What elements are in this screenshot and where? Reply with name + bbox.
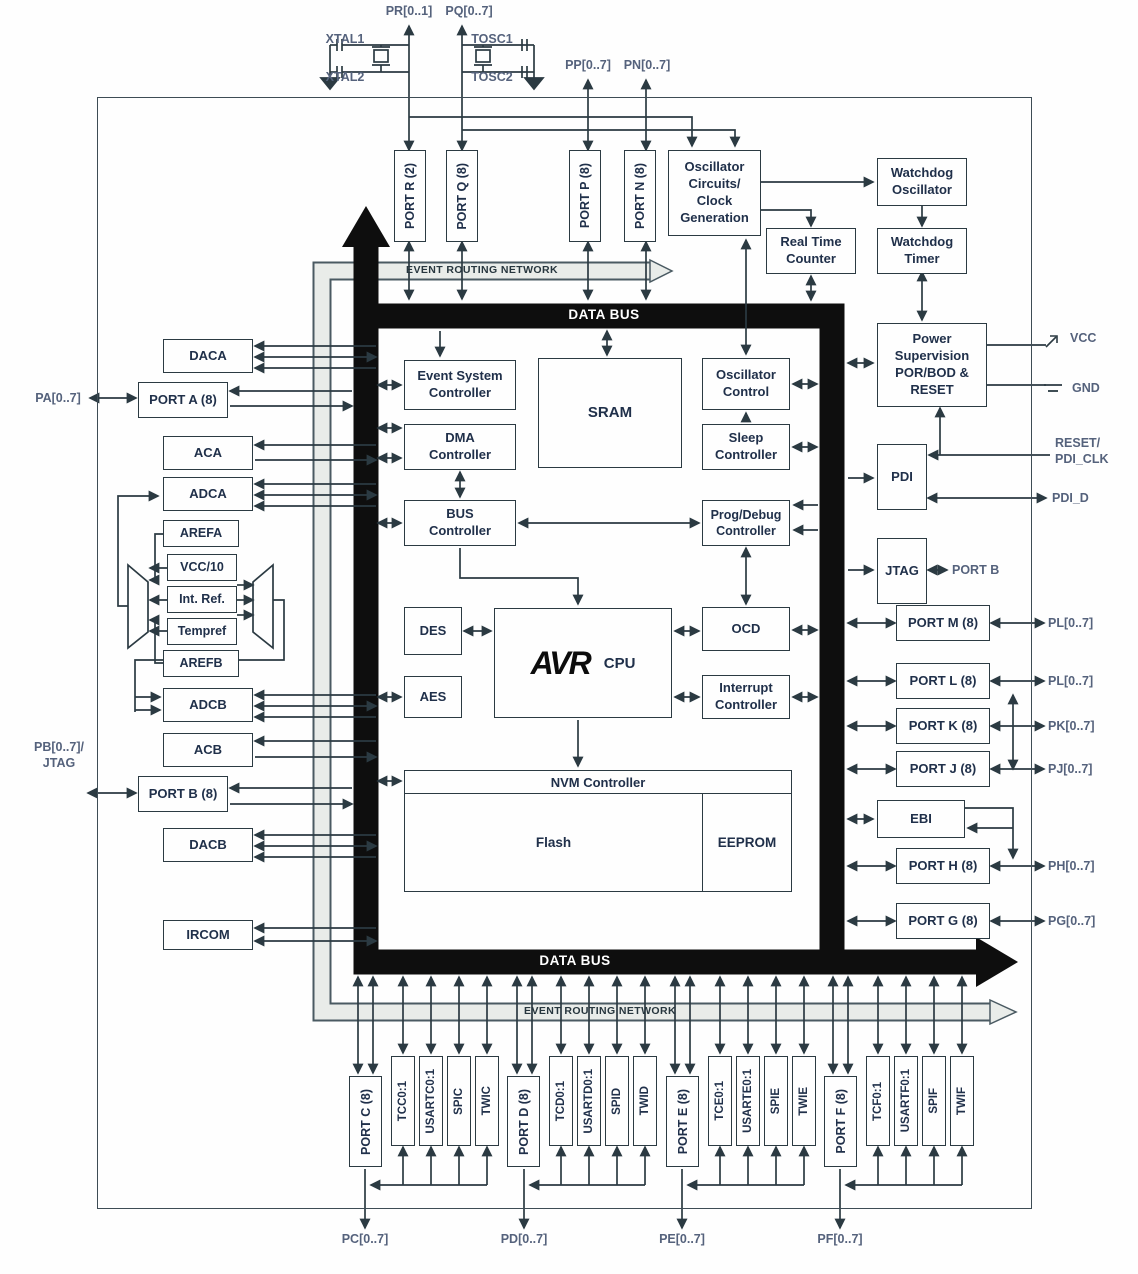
block-spif-label: SPIF — [928, 1088, 940, 1114]
block-power-supervision: Power Supervision POR/BOD & RESET — [877, 323, 987, 407]
block-tcd-label: TCD0:1 — [555, 1081, 567, 1121]
pin-label-pa: PA[0..7] — [26, 391, 90, 407]
mcu-block-diagram: DATA BUS DATA BUS EVENT ROUTING NETWORK … — [0, 0, 1138, 1274]
block-port-m: PORT M (8) — [896, 605, 990, 641]
block-watchdog-timer: Watchdog Timer — [877, 228, 967, 274]
block-watchdog-oscillator: Watchdog Oscillator — [877, 158, 967, 206]
block-tcc: TCC0:1 — [391, 1056, 415, 1146]
block-twie-label: TWIE — [798, 1087, 810, 1116]
block-port-b: PORT B (8) — [138, 776, 228, 812]
pin-label-pb-jtag: PB[0..7]/ JTAG — [24, 740, 94, 771]
nvm-controller-label: NVM Controller — [405, 771, 791, 794]
block-usartf: USARTF0:1 — [894, 1056, 918, 1146]
block-port-l: PORT L (8) — [896, 663, 990, 699]
pin-label-gnd: GND — [1072, 381, 1122, 397]
pin-label-vcc: VCC — [1070, 331, 1120, 347]
block-port-d: PORT D (8) — [507, 1076, 540, 1167]
block-twif-label: TWIF — [956, 1087, 968, 1115]
pin-label-pg: PG[0..7] — [1048, 914, 1110, 930]
block-tcf: TCF0:1 — [866, 1056, 890, 1146]
block-oscillator-circuits: Oscillator Circuits/ Clock Generation — [668, 150, 761, 236]
vcc-symbol — [1046, 336, 1057, 347]
block-cpu: AVR CPU — [494, 608, 672, 718]
block-acb: ACB — [163, 733, 253, 767]
block-port-j: PORT J (8) — [896, 751, 990, 787]
block-daca: DACA — [163, 339, 253, 373]
block-des: DES — [404, 607, 462, 655]
block-flash: Flash — [405, 794, 702, 891]
block-ircom: IRCOM — [163, 920, 253, 950]
block-tcc-label: TCC0:1 — [397, 1081, 409, 1121]
avr-logo: AVR — [531, 645, 590, 682]
block-twie: TWIE — [792, 1056, 816, 1146]
block-port-p: PORT P (8) — [569, 150, 601, 242]
block-port-q-label: PORT Q (8) — [455, 163, 469, 230]
pin-label-pr: PR[0..1] — [380, 4, 438, 20]
pin-label-xtal1: XTAL1 — [320, 32, 370, 48]
block-port-c: PORT C (8) — [349, 1076, 382, 1167]
block-tce-label: TCE0:1 — [714, 1081, 726, 1121]
block-ebi: EBI — [877, 800, 965, 838]
block-port-k: PORT K (8) — [896, 708, 990, 744]
pin-label-pdi-d: PDI_D — [1052, 491, 1112, 507]
block-port-f-label: PORT F (8) — [834, 1089, 848, 1154]
pin-label-pd: PD[0..7] — [494, 1232, 554, 1248]
pin-label-pe: PE[0..7] — [652, 1232, 712, 1248]
block-pdi: PDI — [877, 444, 927, 510]
pin-label-pk: PK[0..7] — [1048, 719, 1110, 735]
pin-label-xtal2: XTAL2 — [320, 70, 370, 86]
block-spie-label: SPIE — [770, 1088, 782, 1114]
block-nvm: NVM Controller Flash EEPROM — [404, 770, 792, 892]
data-bus-label-top: DATA BUS — [549, 307, 659, 322]
pin-label-pq: PQ[0..7] — [440, 4, 498, 20]
block-port-r-label: PORT R (2) — [403, 163, 417, 229]
pin-label-ph: PH[0..7] — [1048, 859, 1110, 875]
block-port-d-label: PORT D (8) — [517, 1089, 531, 1155]
pin-label-pp: PP[0..7] — [559, 58, 617, 74]
block-port-g: PORT G (8) — [896, 903, 990, 939]
pin-label-reset-pdi-clk: RESET/ PDI_CLK — [1055, 436, 1135, 467]
block-twid-label: TWID — [639, 1086, 651, 1115]
block-prog-debug-controller: Prog/Debug Controller — [702, 500, 790, 546]
block-tempref: Tempref — [167, 618, 237, 645]
block-tcf-label: TCF0:1 — [872, 1082, 884, 1121]
block-ocd: OCD — [702, 607, 790, 651]
block-spic-label: SPIC — [453, 1088, 465, 1115]
block-vcc10: VCC/10 — [167, 554, 237, 581]
block-dma-controller: DMA Controller — [404, 424, 516, 470]
block-spie: SPIE — [764, 1056, 788, 1146]
event-routing-label-bottom: EVENT ROUTING NETWORK — [470, 1005, 730, 1017]
block-eeprom: EEPROM — [702, 794, 791, 891]
block-real-time-counter: Real Time Counter — [766, 228, 856, 274]
pin-label-tosc1: TOSC1 — [466, 32, 518, 48]
block-port-f: PORT F (8) — [824, 1076, 857, 1167]
block-spic: SPIC — [447, 1056, 471, 1146]
block-spid: SPID — [605, 1056, 629, 1146]
cpu-label: CPU — [604, 655, 636, 672]
block-tce: TCE0:1 — [708, 1056, 732, 1146]
block-aca: ACA — [163, 436, 253, 470]
block-arefb: AREFB — [163, 650, 239, 677]
block-usarte-label: USARTE0:1 — [742, 1069, 754, 1133]
pin-label-pc: PC[0..7] — [335, 1232, 395, 1248]
block-port-q: PORT Q (8) — [446, 150, 478, 242]
block-port-r: PORT R (2) — [394, 150, 426, 242]
pin-label-pm: PL[0..7] — [1048, 616, 1110, 632]
pin-label-jtag-port-b: PORT B — [952, 563, 1014, 579]
data-bus-label-bottom: DATA BUS — [520, 953, 630, 968]
block-port-p-label: PORT P (8) — [578, 163, 592, 228]
block-adcb: ADCB — [163, 688, 253, 722]
block-usartf-label: USARTF0:1 — [900, 1069, 912, 1132]
block-int-ref: Int. Ref. — [167, 586, 237, 613]
block-spif: SPIF — [922, 1056, 946, 1146]
event-routing-label-top: EVENT ROUTING NETWORK — [382, 264, 582, 276]
block-dacb: DACB — [163, 828, 253, 862]
block-usarte: USARTE0:1 — [736, 1056, 760, 1146]
block-twic-label: TWIC — [481, 1086, 493, 1115]
block-port-a: PORT A (8) — [138, 382, 228, 418]
nvm-body: Flash EEPROM — [405, 794, 791, 891]
block-spid-label: SPID — [611, 1088, 623, 1115]
block-port-n: PORT N (8) — [624, 150, 656, 242]
block-twif: TWIF — [950, 1056, 974, 1146]
block-port-e-label: PORT E (8) — [676, 1089, 690, 1154]
block-usartd: USARTD0:1 — [577, 1056, 601, 1146]
block-arefa: AREFA — [163, 520, 239, 547]
block-port-e: PORT E (8) — [666, 1076, 699, 1167]
block-usartc: USARTC0:1 — [419, 1056, 443, 1146]
block-usartc-label: USARTC0:1 — [425, 1069, 437, 1134]
pin-label-pn: PN[0..7] — [618, 58, 676, 74]
block-sleep-controller: Sleep Controller — [702, 424, 790, 470]
block-port-n-label: PORT N (8) — [633, 163, 647, 229]
gnd-symbol — [1044, 385, 1062, 391]
block-adca: ADCA — [163, 477, 253, 511]
block-usartd-label: USARTD0:1 — [583, 1069, 595, 1134]
block-sram: SRAM — [538, 358, 682, 468]
pin-label-tosc2: TOSC2 — [466, 70, 518, 86]
block-twic: TWIC — [475, 1056, 499, 1146]
block-interrupt-controller: Interrupt Controller — [702, 675, 790, 719]
block-oscillator-control: Oscillator Control — [702, 358, 790, 410]
block-bus-controller: BUS Controller — [404, 500, 516, 546]
block-port-c-label: PORT C (8) — [359, 1089, 373, 1155]
block-jtag: JTAG — [877, 538, 927, 604]
block-aes: AES — [404, 676, 462, 718]
pin-label-pf: PF[0..7] — [810, 1232, 870, 1248]
block-tcd: TCD0:1 — [549, 1056, 573, 1146]
block-twid: TWID — [633, 1056, 657, 1146]
pin-label-pj: PJ[0..7] — [1048, 762, 1110, 778]
block-port-h: PORT H (8) — [896, 848, 990, 884]
pin-label-pl: PL[0..7] — [1048, 674, 1110, 690]
block-event-system-controller: Event System Controller — [404, 360, 516, 410]
